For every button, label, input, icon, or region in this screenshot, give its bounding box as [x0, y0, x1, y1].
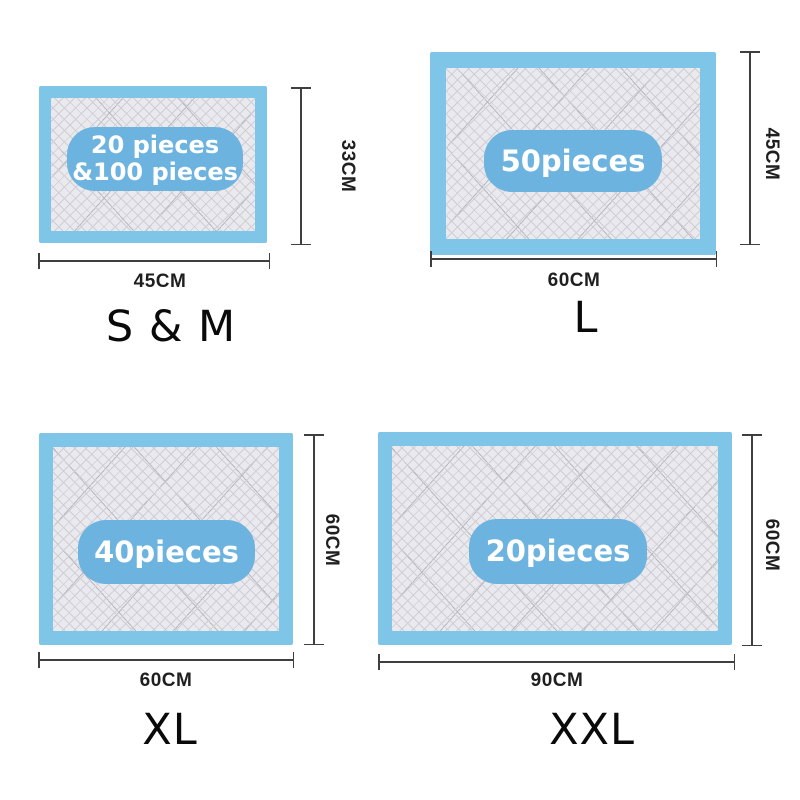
- badge-line: 20 pieces: [91, 132, 219, 159]
- badge-line: &100 pieces: [72, 159, 238, 186]
- pieces-badge-xl: 40pieces: [78, 520, 255, 584]
- size-chart-canvas: 20 pieces &100 pieces 33CM 45CM S & M 50…: [0, 0, 800, 800]
- height-dimension-line-xl: [313, 434, 315, 645]
- badge-line: 50pieces: [501, 145, 646, 177]
- width-dimension-line-s-m: [38, 260, 270, 262]
- width-dimension-line-l: [430, 258, 717, 260]
- width-dimension-label-l: 60CM: [548, 270, 601, 292]
- height-dimension-label-s-m: 33CM: [336, 140, 358, 193]
- size-label-xl: XL: [142, 705, 197, 755]
- badge-line: 20pieces: [486, 535, 631, 567]
- height-dimension-line-s-m: [300, 87, 302, 245]
- size-label-xxl: XXL: [549, 705, 635, 755]
- width-dimension-line-xxl: [378, 661, 735, 663]
- pieces-badge-xxl: 20pieces: [469, 519, 647, 584]
- height-dimension-label-xl: 60CM: [320, 514, 342, 567]
- size-label-s-m: S & M: [106, 302, 236, 352]
- height-dimension-line-xxl: [751, 434, 753, 646]
- width-dimension-label-s-m: 45CM: [134, 271, 187, 293]
- pieces-badge-l: 50pieces: [484, 130, 662, 192]
- size-label-l: L: [574, 293, 599, 343]
- badge-line: 40pieces: [94, 536, 239, 568]
- height-dimension-line-l: [749, 51, 751, 245]
- height-dimension-label-xxl: 60CM: [760, 519, 782, 572]
- pieces-badge-s-m: 20 pieces &100 pieces: [67, 127, 243, 191]
- width-dimension-label-xl: 60CM: [140, 670, 193, 692]
- height-dimension-label-l: 45CM: [760, 128, 782, 181]
- width-dimension-label-xxl: 90CM: [531, 670, 584, 692]
- width-dimension-line-xl: [38, 659, 294, 661]
